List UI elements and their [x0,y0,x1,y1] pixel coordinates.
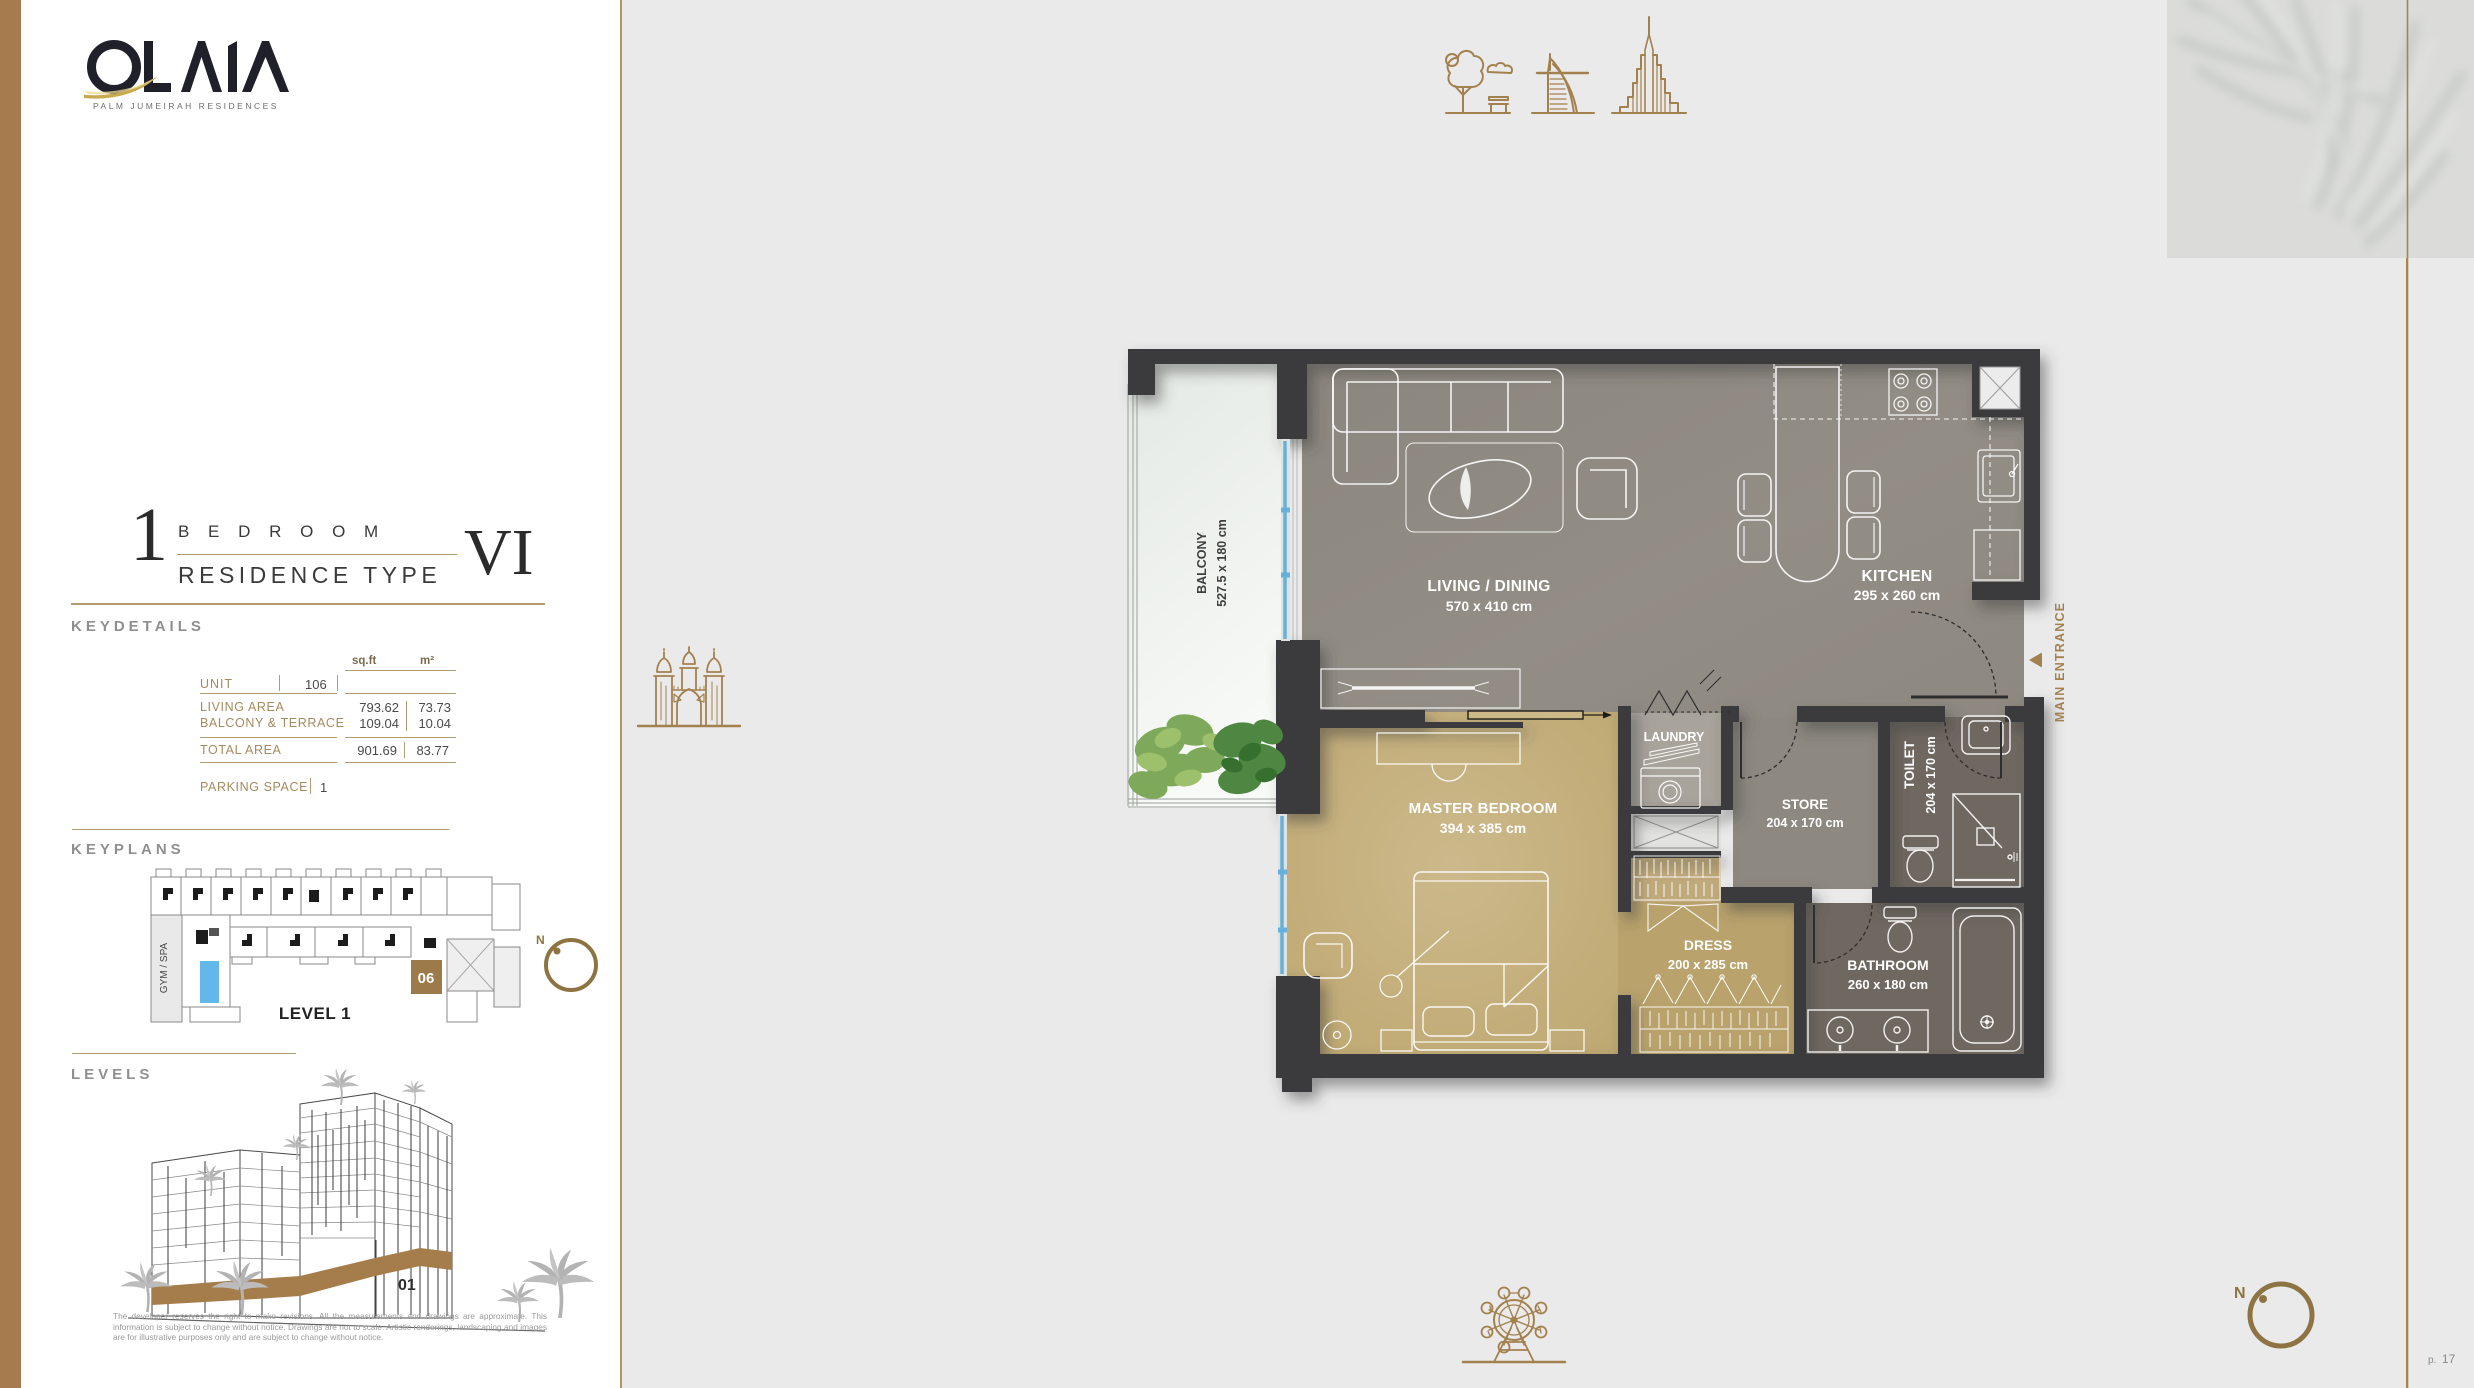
svg-text:LIVING / DINING: LIVING / DINING [1427,578,1550,595]
svg-text:MAIN ENTRANCE: MAIN ENTRANCE [2053,602,2067,722]
svg-text:BATHROOM: BATHROOM [1847,957,1928,973]
svg-text:204 x 170 cm: 204 x 170 cm [1766,816,1843,830]
svg-text:570 x 410 cm: 570 x 410 cm [1446,598,1532,614]
svg-text:394 x 385 cm: 394 x 385 cm [1440,820,1526,836]
svg-text:KITCHEN: KITCHEN [1862,568,1933,585]
svg-text:527.5 x 180 cm: 527.5 x 180 cm [1215,519,1229,607]
svg-text:MASTER BEDROOM: MASTER BEDROOM [1409,800,1558,817]
svg-text:N: N [2234,1285,2246,1302]
svg-text:295 x 260 cm: 295 x 260 cm [1854,587,1940,603]
svg-text:TOILET: TOILET [1902,740,1917,789]
svg-text:DRESS: DRESS [1684,937,1732,953]
svg-text:260 x 180 cm: 260 x 180 cm [1848,977,1928,992]
svg-text:BALCONY: BALCONY [1195,531,1209,593]
svg-text:204 x 170 cm: 204 x 170 cm [1924,736,1938,813]
svg-text:200 x 285 cm: 200 x 285 cm [1668,957,1748,972]
svg-text:STORE: STORE [1782,797,1828,812]
svg-text:LAUNDRY: LAUNDRY [1644,730,1705,744]
